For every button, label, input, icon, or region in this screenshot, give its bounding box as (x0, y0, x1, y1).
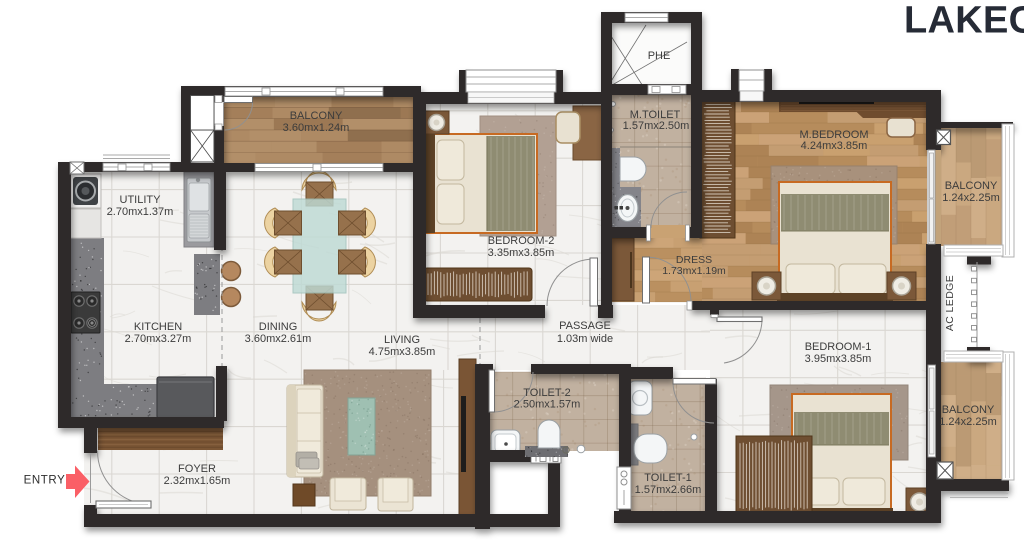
svg-text:1.57mx2.50m: 1.57mx2.50m (623, 120, 690, 132)
svg-text:1.24x2.25m: 1.24x2.25m (942, 192, 999, 204)
svg-text:FOYER: FOYER (178, 463, 216, 475)
svg-text:3.60mx1.24m: 3.60mx1.24m (283, 122, 350, 134)
svg-text:4.75mx3.85m: 4.75mx3.85m (369, 346, 436, 358)
svg-text:1.03m wide: 1.03m wide (557, 333, 613, 345)
svg-text:PHE: PHE (648, 50, 671, 62)
svg-text:2.70mx1.37m: 2.70mx1.37m (107, 206, 174, 218)
svg-text:2.32mx1.65m: 2.32mx1.65m (164, 475, 231, 487)
svg-text:BALCONY: BALCONY (942, 404, 995, 416)
svg-text:1.73mx1.19m: 1.73mx1.19m (662, 265, 726, 277)
svg-text:2.70mx3.27m: 2.70mx3.27m (125, 333, 192, 345)
svg-text:LAKECR: LAKECR (904, 0, 1024, 42)
svg-text:3.60mx2.61m: 3.60mx2.61m (245, 333, 312, 345)
svg-text:TOILET-2: TOILET-2 (523, 387, 570, 399)
svg-text:BALCONY: BALCONY (290, 110, 343, 122)
svg-text:1.24x2.25m: 1.24x2.25m (939, 416, 996, 428)
svg-text:4.24mx3.85m: 4.24mx3.85m (801, 140, 868, 152)
svg-text:1.57mx2.66m: 1.57mx2.66m (635, 484, 702, 496)
svg-text:DINING: DINING (259, 321, 298, 333)
svg-text:PASSAGE: PASSAGE (559, 320, 611, 332)
svg-text:BEDROOM-1: BEDROOM-1 (805, 341, 872, 353)
svg-text:3.95mx3.85m: 3.95mx3.85m (805, 353, 872, 365)
svg-text:LIVING: LIVING (384, 334, 420, 346)
svg-text:ENTRY: ENTRY (24, 475, 66, 487)
svg-text:2.50mx1.57m: 2.50mx1.57m (514, 399, 581, 411)
svg-text:KITCHEN: KITCHEN (134, 321, 182, 333)
svg-text:TOILET-1: TOILET-1 (644, 472, 691, 484)
svg-text:AC LEDGE: AC LEDGE (944, 275, 956, 331)
svg-text:BEDROOM-2: BEDROOM-2 (488, 235, 555, 247)
svg-text:BALCONY: BALCONY (945, 180, 998, 192)
svg-text:3.35mx3.85m: 3.35mx3.85m (488, 247, 555, 259)
svg-text:UTILITY: UTILITY (120, 194, 162, 206)
